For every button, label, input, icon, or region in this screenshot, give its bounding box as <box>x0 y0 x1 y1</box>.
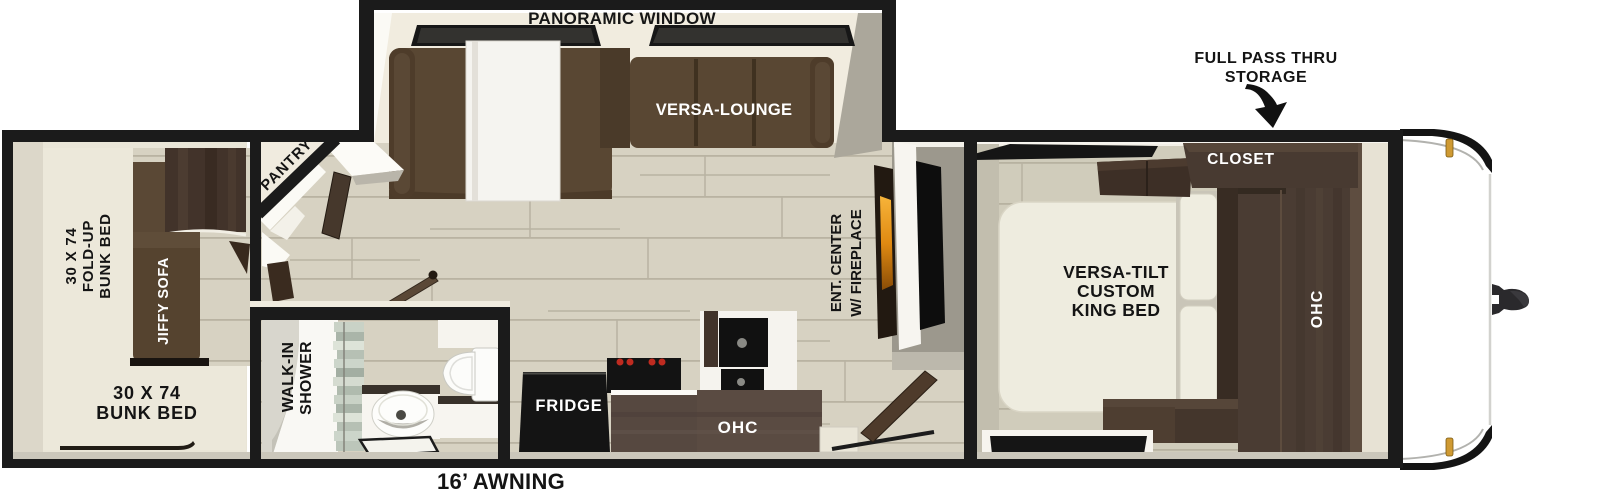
svg-text:ENT. CENTER: ENT. CENTER <box>828 214 845 313</box>
svg-text:30 X 74: 30 X 74 <box>113 383 181 403</box>
svg-text:JIFFY SOFA: JIFFY SOFA <box>156 257 172 345</box>
svg-text:SHOWER: SHOWER <box>298 341 315 415</box>
svg-text:FRIDGE: FRIDGE <box>535 397 602 415</box>
svg-text:W/ FIREPLACE: W/ FIREPLACE <box>848 209 865 317</box>
svg-text:OHC: OHC <box>718 418 759 437</box>
svg-text:OHC: OHC <box>1309 290 1326 329</box>
svg-text:BUNK BED: BUNK BED <box>97 213 114 299</box>
svg-text:CLOSET: CLOSET <box>1207 151 1275 168</box>
svg-text:PANORAMIC WINDOW: PANORAMIC WINDOW <box>528 9 716 28</box>
svg-text:30 X 74: 30 X 74 <box>63 227 80 284</box>
svg-text:VERSA-LOUNGE: VERSA-LOUNGE <box>656 101 793 119</box>
svg-text:CUSTOM: CUSTOM <box>1077 281 1155 301</box>
svg-text:KING BED: KING BED <box>1072 300 1161 320</box>
svg-text:BUNK BED: BUNK BED <box>96 403 197 423</box>
svg-text:VERSA-TILT: VERSA-TILT <box>1063 262 1169 282</box>
svg-text:16’ AWNING: 16’ AWNING <box>437 469 565 494</box>
svg-text:STORAGE: STORAGE <box>1225 69 1307 86</box>
svg-text:FOLD-UP: FOLD-UP <box>80 220 97 292</box>
svg-text:WALK-IN: WALK-IN <box>280 342 297 413</box>
svg-text:FULL PASS THRU: FULL PASS THRU <box>1194 50 1337 67</box>
